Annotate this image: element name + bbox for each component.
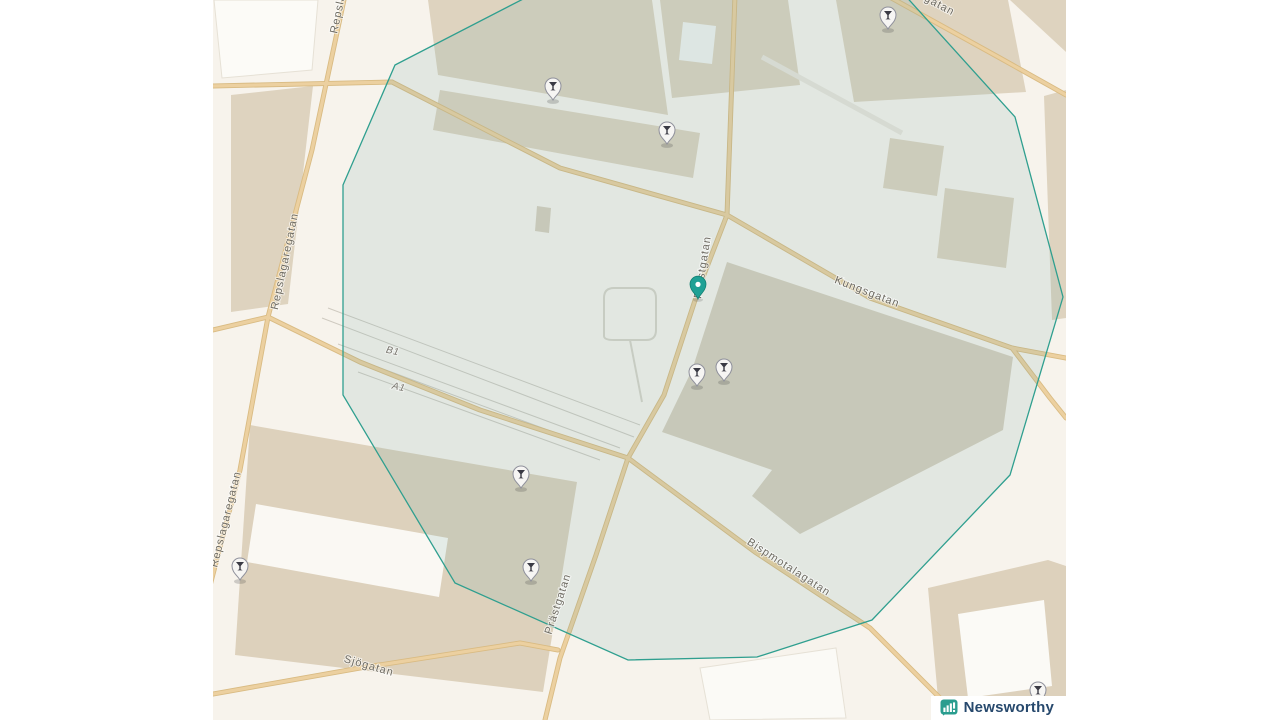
left-margin — [0, 0, 213, 720]
newsworthy-wordmark: Newsworthy — [964, 696, 1054, 720]
screenshot-root: Repslagaregatan Repslagaregatan Repslaga… — [0, 0, 1280, 720]
newsworthy-logo[interactable]: Newsworthy — [931, 696, 1066, 720]
map-viewport[interactable]: Repslagaregatan Repslagaregatan Repslaga… — [213, 0, 1066, 720]
map-canvas[interactable]: Repslagaregatan Repslagaregatan Repslaga… — [213, 0, 1066, 720]
right-margin — [1066, 0, 1280, 720]
newsworthy-icon — [940, 699, 958, 717]
